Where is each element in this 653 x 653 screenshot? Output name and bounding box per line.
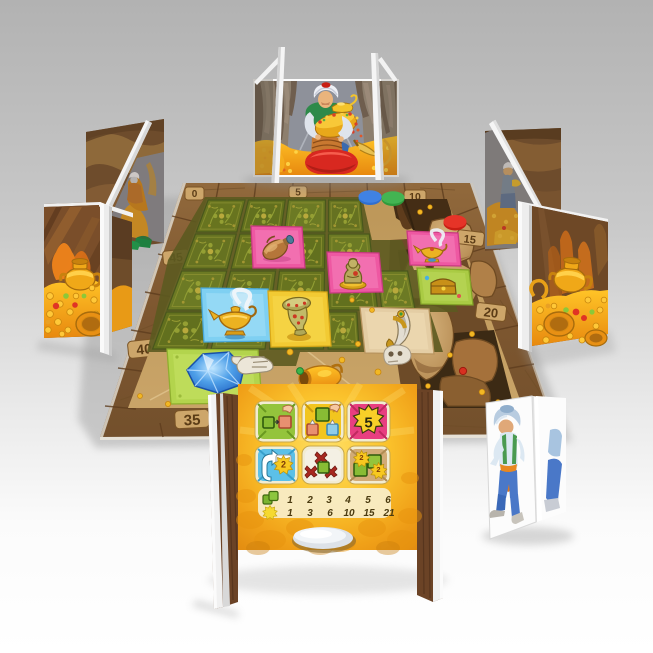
svg-text:3: 3 <box>326 495 332 506</box>
svg-text:2: 2 <box>376 465 380 474</box>
svg-text:2: 2 <box>306 495 313 506</box>
svg-text:10: 10 <box>343 508 355 519</box>
svg-text:5: 5 <box>364 415 372 432</box>
svg-text:35: 35 <box>183 412 201 430</box>
svg-text:15: 15 <box>363 508 375 519</box>
svg-text:1: 1 <box>287 508 293 519</box>
svg-text:4: 4 <box>344 495 351 506</box>
svg-text:5: 5 <box>295 188 301 199</box>
svg-text:15: 15 <box>463 233 477 246</box>
svg-text:0: 0 <box>192 189 198 200</box>
svg-text:2: 2 <box>281 460 286 470</box>
svg-text:5: 5 <box>365 495 371 506</box>
svg-text:3: 3 <box>307 508 313 519</box>
svg-text:20: 20 <box>483 304 499 321</box>
svg-text:6: 6 <box>327 508 333 519</box>
svg-text:6: 6 <box>385 495 391 506</box>
svg-text:21: 21 <box>382 508 395 519</box>
svg-text:1: 1 <box>287 495 293 506</box>
svg-text:2: 2 <box>359 453 363 462</box>
